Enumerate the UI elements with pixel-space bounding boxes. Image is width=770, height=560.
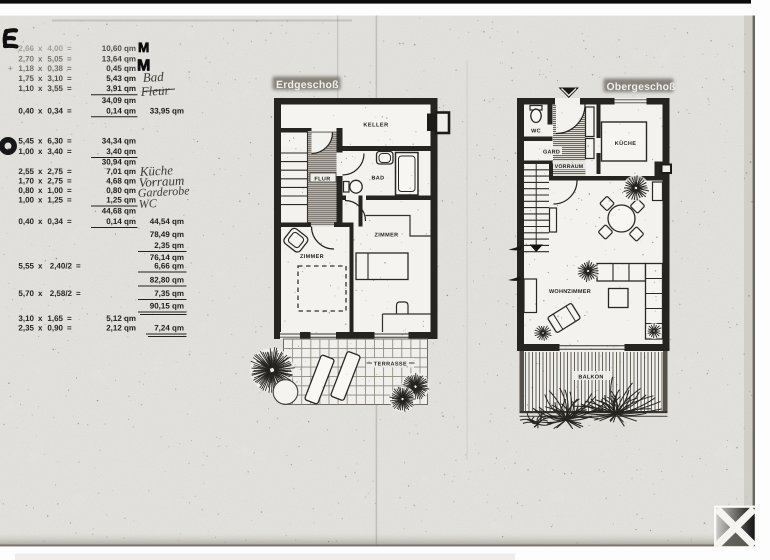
svg-text:x: x (38, 324, 43, 333)
svg-text:0,38: 0,38 (47, 64, 63, 73)
svg-text:0,34: 0,34 (47, 107, 63, 116)
svg-text:BAD: BAD (371, 176, 384, 182)
svg-text:2,12 qm: 2,12 qm (106, 324, 136, 333)
svg-text:x: x (38, 55, 43, 64)
svg-text:x: x (38, 177, 43, 186)
svg-text:2,35 qm: 2,35 qm (154, 241, 184, 250)
svg-text:5,05: 5,05 (47, 55, 63, 64)
svg-text:0,40: 0,40 (18, 107, 34, 116)
svg-text:=: = (67, 107, 72, 116)
svg-text:0,40: 0,40 (18, 217, 34, 226)
svg-text:3,10: 3,10 (47, 74, 63, 83)
svg-text:6,66 qm: 6,66 qm (154, 262, 184, 271)
svg-text:x: x (38, 217, 43, 226)
svg-text:78,49 qm: 78,49 qm (150, 230, 184, 239)
svg-text:1,00: 1,00 (47, 186, 63, 195)
svg-text:GARD: GARD (543, 150, 560, 156)
svg-text:=: = (67, 74, 72, 83)
svg-text:ZIMMER: ZIMMER (300, 254, 324, 260)
svg-text:WC: WC (531, 129, 541, 135)
svg-text:WOHNZIMMER: WOHNZIMMER (549, 289, 591, 295)
svg-text:=: = (76, 262, 81, 271)
svg-text:=: = (67, 177, 72, 186)
svg-text:=: = (67, 55, 72, 64)
svg-text:44,54 qm: 44,54 qm (150, 217, 184, 226)
svg-text:7,35 qm: 7,35 qm (154, 289, 184, 298)
svg-text:x: x (38, 44, 43, 53)
svg-text:2,75: 2,75 (47, 177, 63, 186)
svg-text:3,10: 3,10 (18, 314, 34, 323)
svg-text:5,70: 5,70 (18, 289, 34, 298)
svg-text:M: M (138, 40, 149, 55)
svg-text:90,15 qm: 90,15 qm (150, 302, 184, 311)
svg-text:30,94 qm: 30,94 qm (102, 158, 136, 167)
svg-text:0,80 qm: 0,80 qm (106, 186, 136, 195)
svg-text:=: = (67, 167, 72, 176)
svg-text:1,65: 1,65 (47, 314, 63, 323)
svg-text:1,70: 1,70 (18, 177, 34, 186)
svg-text:x: x (38, 167, 43, 176)
svg-text:1,25: 1,25 (47, 196, 63, 205)
svg-text:=: = (67, 137, 72, 146)
svg-text:5,43 qm: 5,43 qm (106, 74, 136, 83)
svg-text:82,80 qm: 82,80 qm (150, 276, 184, 285)
svg-text:KELLER: KELLER (363, 123, 388, 129)
svg-text:x: x (38, 107, 43, 116)
svg-text:2,40/2: 2,40/2 (50, 262, 73, 271)
svg-text:=: = (76, 289, 81, 298)
svg-text:0,14 qm: 0,14 qm (106, 107, 136, 116)
svg-text:2,70: 2,70 (18, 55, 34, 64)
svg-text:2,66: 2,66 (18, 44, 34, 53)
svg-text:3,55: 3,55 (47, 84, 63, 93)
svg-text:3,40: 3,40 (47, 147, 63, 156)
svg-text:2,55: 2,55 (18, 167, 34, 176)
svg-text:x: x (38, 84, 43, 93)
svg-text:Obergeschoß: Obergeschoß (607, 82, 677, 93)
svg-text:7,24 qm: 7,24 qm (154, 324, 184, 333)
svg-text:x: x (38, 147, 43, 156)
svg-text:10,60 qm: 10,60 qm (102, 44, 136, 53)
svg-text:x: x (38, 74, 43, 83)
svg-text:0,80: 0,80 (18, 186, 34, 195)
svg-text:x: x (38, 186, 43, 195)
svg-text:x: x (38, 196, 43, 205)
svg-text:+: + (8, 64, 13, 73)
svg-text:13,64 qm: 13,64 qm (102, 55, 136, 64)
svg-text:=: = (67, 196, 72, 205)
svg-text:BALKON: BALKON (578, 375, 603, 381)
svg-text:ZIMMER: ZIMMER (374, 233, 398, 239)
svg-text:3,91 qm: 3,91 qm (106, 84, 136, 93)
svg-text:=: = (67, 217, 72, 226)
svg-text:1,18: 1,18 (18, 64, 34, 73)
svg-text:3,40 qm: 3,40 qm (106, 147, 136, 156)
svg-text:0,14 qm: 0,14 qm (106, 217, 136, 226)
svg-text:1,00: 1,00 (18, 196, 34, 205)
svg-text:x: x (38, 137, 43, 146)
svg-text:1,25 qm: 1,25 qm (106, 196, 136, 205)
svg-text:FLUR: FLUR (314, 177, 330, 183)
svg-text:0,90: 0,90 (47, 324, 63, 333)
svg-text:2,58/2: 2,58/2 (50, 289, 73, 298)
svg-text:=: = (67, 64, 72, 73)
svg-text:4,00: 4,00 (47, 44, 63, 53)
svg-text:0,34: 0,34 (47, 217, 63, 226)
svg-text:4,68 qm: 4,68 qm (106, 177, 136, 186)
svg-text:VORRAUM: VORRAUM (555, 164, 584, 170)
svg-text:=: = (67, 147, 72, 156)
svg-text:KÜCHE: KÜCHE (615, 140, 637, 147)
svg-text:44,68 qm: 44,68 qm (102, 207, 136, 216)
svg-text:1,75: 1,75 (18, 74, 34, 83)
svg-text:WC: WC (138, 196, 158, 211)
svg-text:x: x (38, 64, 43, 73)
svg-text:1,10: 1,10 (18, 84, 34, 93)
svg-text:5,12 qm: 5,12 qm (106, 314, 136, 323)
svg-text:1,00: 1,00 (18, 147, 34, 156)
svg-text:5,55: 5,55 (18, 262, 34, 271)
svg-text:Erdgeschoß: Erdgeschoß (276, 79, 339, 91)
svg-text:2,35: 2,35 (18, 324, 34, 333)
svg-text:0,45 qm: 0,45 qm (106, 64, 136, 73)
svg-text:34,09 qm: 34,09 qm (102, 96, 136, 105)
svg-text:x: x (38, 314, 43, 323)
svg-text:=: = (67, 314, 72, 323)
svg-text:=: = (67, 324, 72, 333)
svg-text:7,01 qm: 7,01 qm (106, 167, 136, 176)
svg-text:33,95 qm: 33,95 qm (150, 107, 184, 116)
svg-text:x: x (38, 289, 43, 298)
svg-text:=: = (67, 186, 72, 195)
svg-text:=: = (67, 44, 72, 53)
svg-text:5,45: 5,45 (18, 137, 34, 146)
svg-text:34,34 qm: 34,34 qm (102, 137, 136, 146)
svg-text:x: x (38, 262, 43, 271)
svg-text:=: = (67, 84, 72, 93)
svg-text:TERRASSE: TERRASSE (374, 362, 407, 368)
svg-text:6,30: 6,30 (47, 137, 63, 146)
svg-text:2,75: 2,75 (47, 167, 63, 176)
